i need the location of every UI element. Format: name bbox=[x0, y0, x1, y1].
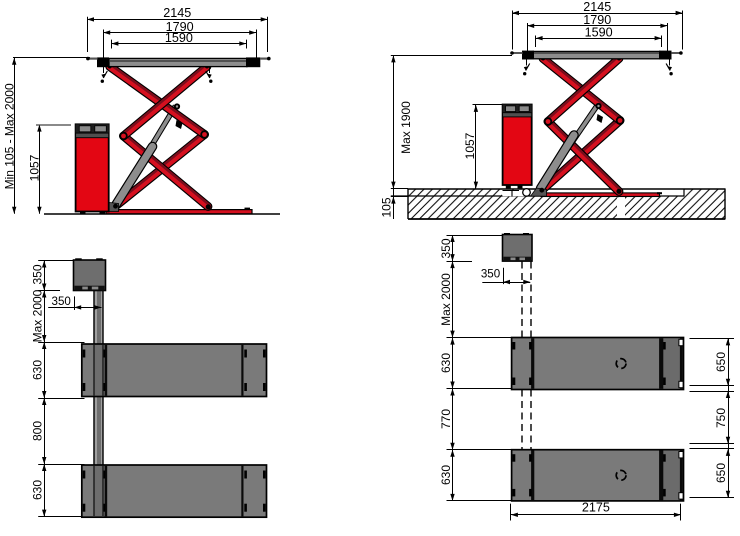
svg-text:1057: 1057 bbox=[463, 132, 477, 159]
svg-text:1590: 1590 bbox=[585, 25, 613, 39]
svg-text:630: 630 bbox=[439, 353, 453, 373]
svg-text:1057: 1057 bbox=[28, 154, 42, 181]
svg-text:630: 630 bbox=[31, 480, 45, 500]
svg-text:770: 770 bbox=[439, 409, 453, 429]
svg-text:Max 2000: Max 2000 bbox=[439, 273, 453, 326]
svg-text:350: 350 bbox=[31, 264, 45, 284]
svg-text:350: 350 bbox=[52, 295, 71, 308]
svg-text:630: 630 bbox=[439, 465, 453, 485]
svg-text:350: 350 bbox=[439, 238, 453, 258]
svg-text:800: 800 bbox=[31, 421, 45, 441]
svg-text:650: 650 bbox=[714, 463, 728, 483]
svg-text:650: 650 bbox=[714, 352, 728, 372]
svg-text:1590: 1590 bbox=[165, 31, 193, 45]
svg-text:Max 1900: Max 1900 bbox=[399, 101, 413, 154]
svg-text:350: 350 bbox=[481, 268, 500, 281]
svg-text:2175: 2175 bbox=[582, 501, 610, 515]
svg-text:750: 750 bbox=[714, 408, 728, 428]
svg-text:2145: 2145 bbox=[163, 6, 191, 20]
svg-text:2145: 2145 bbox=[583, 0, 611, 14]
svg-text:Min 105 - Max 2000: Min 105 - Max 2000 bbox=[3, 83, 17, 189]
svg-text:105: 105 bbox=[380, 197, 394, 217]
svg-text:Max 2000: Max 2000 bbox=[31, 289, 45, 342]
svg-text:630: 630 bbox=[31, 360, 45, 380]
